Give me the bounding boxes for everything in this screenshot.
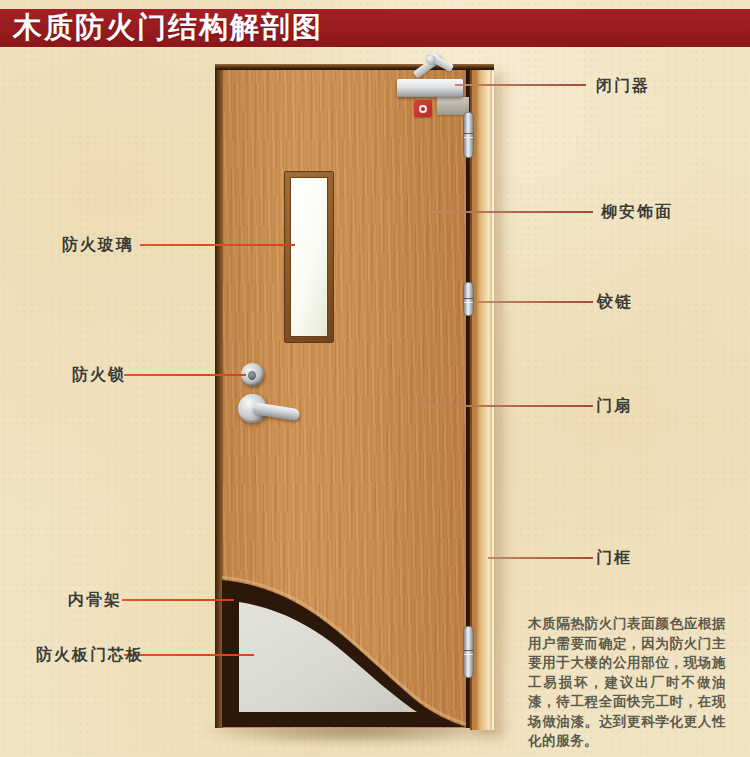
description-text: 木质隔热防火门表面颜色应根据用户需要而确定，因为防火门主要用于大楼的公用部位，现…	[528, 614, 726, 751]
hinge-middle	[463, 282, 474, 316]
label-inner-skeleton: 内骨架	[68, 590, 122, 611]
leader-line-fireproof-glass	[140, 244, 295, 246]
fireproof-glass-pane	[290, 177, 328, 337]
leader-line-door-leaf	[420, 405, 593, 407]
glass-window-frame	[284, 171, 334, 343]
label-door-frame: 门框	[596, 548, 632, 569]
label-hinge: 铰链	[597, 292, 633, 313]
page-title: 木质防火门结构解剖图	[0, 8, 323, 48]
hinge-bottom	[463, 626, 474, 678]
label-door-leaf: 门扇	[596, 396, 632, 417]
core-panel-shape	[239, 602, 417, 712]
label-fireproof-glass: 防火玻璃	[62, 235, 134, 256]
door-closer-body	[397, 79, 463, 97]
hinge-top	[463, 112, 474, 158]
label-fireproof-lock: 防火锁	[72, 365, 126, 386]
infographic-canvas: 木质防火门结构解剖图	[0, 0, 750, 757]
leader-line-veneer	[428, 211, 593, 213]
leader-line-hinge	[477, 301, 593, 303]
leader-line-door-closer	[455, 84, 586, 86]
leader-line-door-frame	[488, 557, 593, 559]
door-cutaway	[215, 558, 470, 730]
label-door-closer: 闭门器	[596, 76, 650, 97]
label-veneer: 柳安饰面	[601, 202, 673, 223]
alarm-indicator	[414, 100, 432, 117]
label-core-panel: 防火板门芯板	[36, 645, 144, 666]
title-bar: 木质防火门结构解剖图	[0, 9, 750, 47]
door-closer-knuckle	[426, 55, 436, 65]
leader-line-inner-skeleton	[122, 599, 234, 601]
leader-line-fireproof-lock	[124, 374, 246, 376]
